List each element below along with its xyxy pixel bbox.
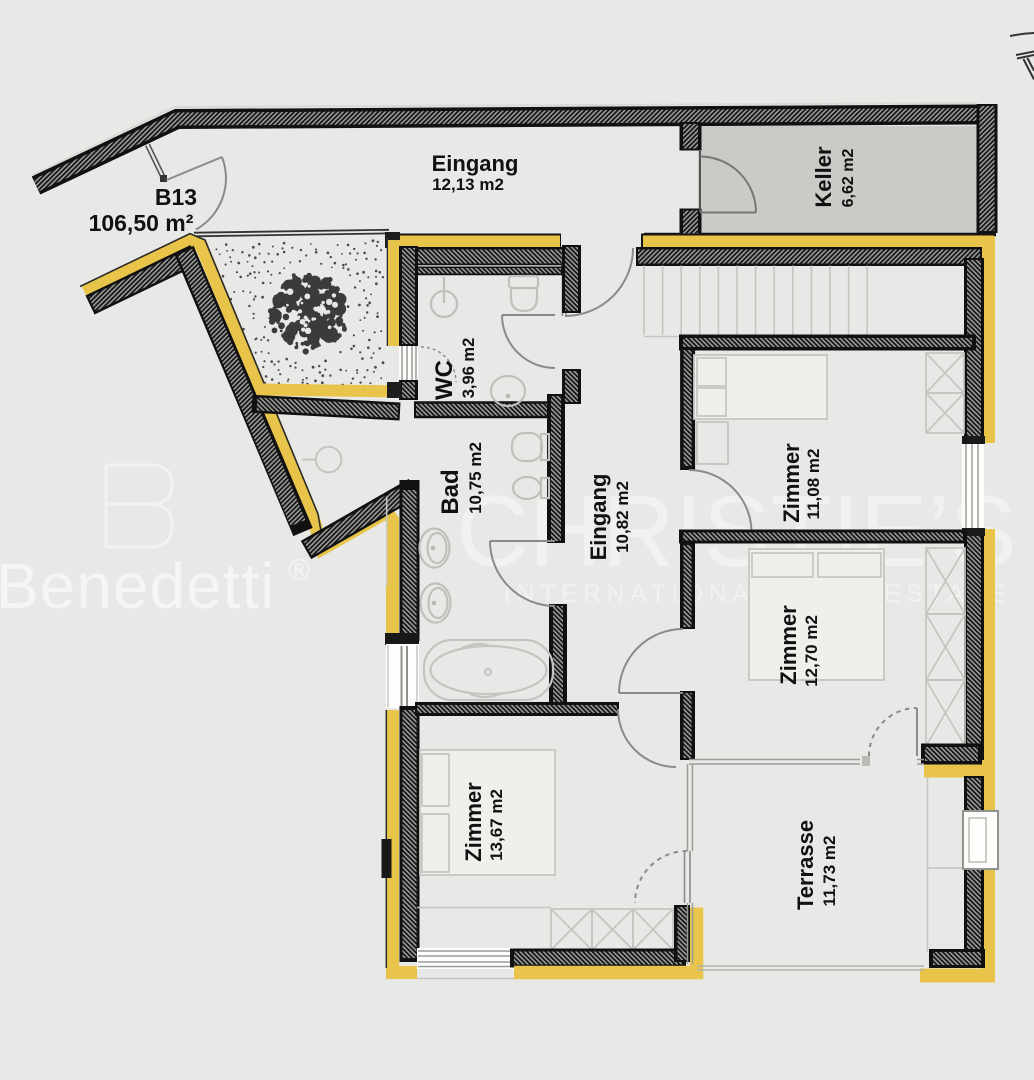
svg-text:10,82 m2: 10,82 m2 xyxy=(613,481,632,553)
svg-text:B13: B13 xyxy=(155,184,197,210)
svg-text:106,50 m²: 106,50 m² xyxy=(89,210,194,236)
svg-text:6,62 m2: 6,62 m2 xyxy=(840,149,857,208)
svg-text:Eingang: Eingang xyxy=(432,151,519,176)
svg-text:WC: WC xyxy=(431,360,458,400)
svg-text:12,13 m2: 12,13 m2 xyxy=(432,175,504,194)
svg-text:11,08 m2: 11,08 m2 xyxy=(804,449,823,520)
svg-text:Bad: Bad xyxy=(437,469,464,514)
svg-text:13,67 m2: 13,67 m2 xyxy=(487,789,506,861)
svg-text:Benedetti: Benedetti xyxy=(0,550,275,622)
svg-text:Zimmer: Zimmer xyxy=(779,443,804,523)
svg-text:12,70 m2: 12,70 m2 xyxy=(802,615,821,687)
svg-text:Zimmer: Zimmer xyxy=(461,782,486,862)
svg-text:3,96 m2: 3,96 m2 xyxy=(460,338,478,399)
svg-text:Keller: Keller xyxy=(811,146,836,208)
svg-text:Eingang: Eingang xyxy=(586,474,611,561)
svg-text:Terrasse: Terrasse xyxy=(793,820,818,910)
svg-text:11,73 m2: 11,73 m2 xyxy=(820,836,839,907)
svg-text:®: ® xyxy=(288,554,310,587)
svg-text:10,75 m2: 10,75 m2 xyxy=(466,442,485,514)
svg-text:Zimmer: Zimmer xyxy=(776,605,801,685)
